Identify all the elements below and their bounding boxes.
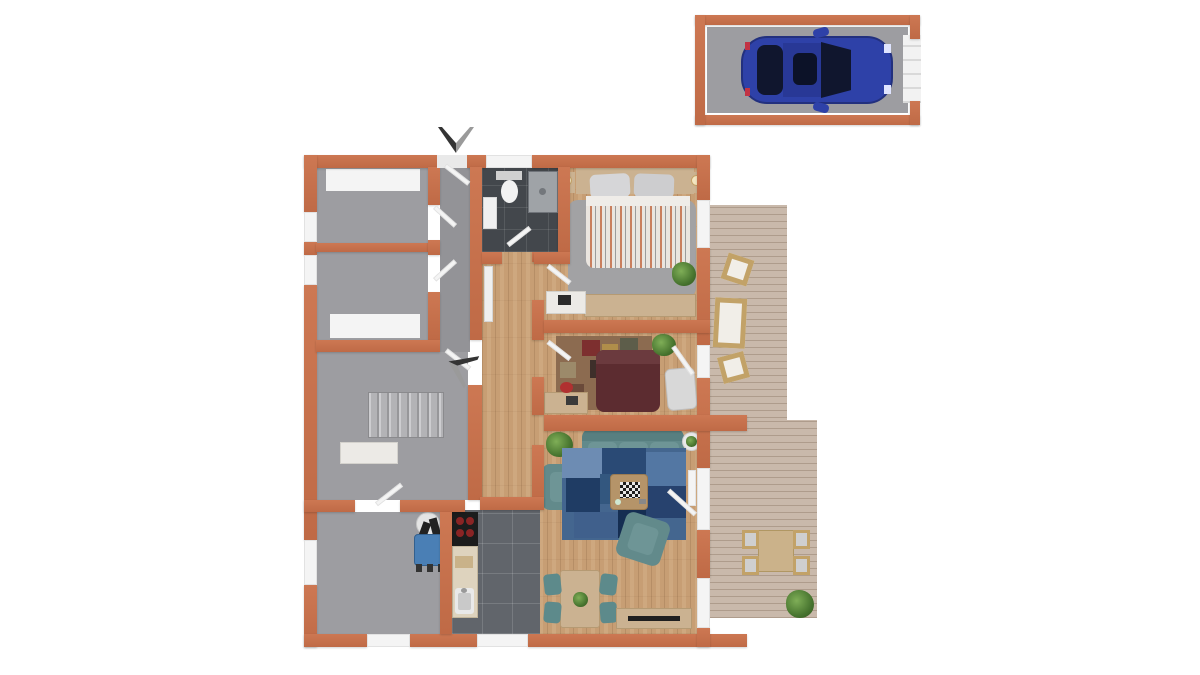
floorplan-canvas (0, 0, 1200, 675)
layer-arrows (0, 0, 1200, 675)
entry-arrow-right-wing (456, 127, 474, 153)
entry-arrow-left-wing (438, 127, 456, 153)
entry-arrow (438, 127, 474, 153)
stair-arrow-right-wing (441, 362, 472, 389)
stair-arrow (441, 345, 480, 389)
